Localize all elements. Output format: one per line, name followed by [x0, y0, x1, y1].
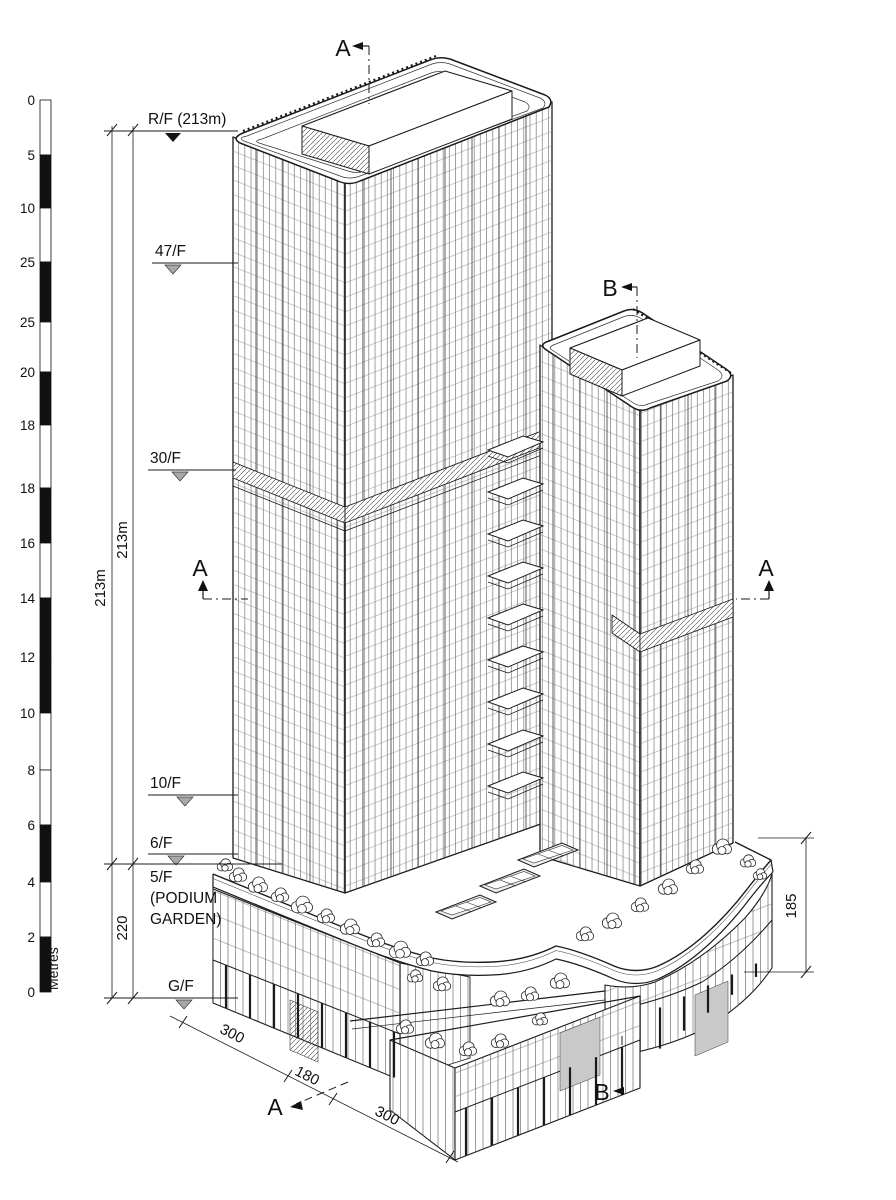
tree-foliage	[537, 1019, 543, 1025]
dim-height-213m-b: 213m	[114, 521, 131, 559]
scale-tick-label: 0	[27, 93, 35, 108]
tree-foliage	[222, 865, 228, 871]
section-b-bottom-label: B	[594, 1079, 609, 1105]
dim-height-213m-a: 213m	[92, 569, 109, 607]
garden-tree	[521, 987, 538, 1001]
section-a-top-label: A	[335, 35, 351, 61]
tree-foliage	[401, 1027, 408, 1034]
tree-foliage	[254, 885, 262, 893]
drawing-canvas: 051025252018181614121086420 Metres 213m …	[0, 0, 896, 1200]
scale-tick-label: 10	[20, 201, 35, 216]
tree-foliage	[526, 994, 533, 1001]
scale-segment	[40, 208, 51, 262]
section-marker-a-right: A	[736, 555, 774, 599]
level-rf-label: R/F (213m)	[148, 111, 226, 128]
tree-foliage	[276, 895, 283, 902]
tree-foliage	[581, 934, 588, 941]
scale-segment	[40, 882, 51, 937]
scale-segment	[40, 825, 51, 882]
level-47f: 47/F	[152, 243, 238, 274]
scale-tick-label: 16	[20, 536, 35, 551]
level-gf-marker	[176, 1000, 192, 1009]
tree-foliage	[496, 1041, 503, 1048]
section-a-left-label: A	[192, 555, 208, 581]
scale-segment	[40, 372, 51, 425]
tree-foliage	[431, 1041, 439, 1049]
right-tower	[540, 309, 733, 886]
scale-tick-label: 5	[27, 148, 35, 163]
level-6f-label: 6/F	[150, 835, 172, 852]
tree-foliage	[298, 904, 307, 913]
level-10f: 10/F	[148, 775, 238, 806]
tree-foliage	[464, 1049, 471, 1056]
scale-tick-label: 2	[27, 930, 35, 945]
left-tower	[233, 56, 552, 893]
tree-foliage	[608, 921, 616, 929]
tree-foliage	[691, 867, 698, 874]
scale-tick-label: 14	[20, 591, 36, 606]
level-47f-label: 47/F	[155, 243, 186, 260]
level-30f-label: 30/F	[150, 450, 181, 467]
tree-foliage	[234, 875, 241, 882]
garden-tree	[491, 1034, 508, 1048]
scale-tick-label: 18	[20, 418, 35, 433]
scale-segment	[40, 543, 51, 598]
scale-segment	[40, 155, 51, 208]
scale-segment	[40, 425, 51, 488]
scale-unit-label: Metres	[45, 947, 61, 990]
section-marker-a-bottom: A	[267, 1082, 348, 1120]
garden-tree	[217, 859, 232, 871]
right-tower-face-left	[540, 345, 640, 886]
section-a-right-label: A	[758, 555, 774, 581]
dim-plan-180: 180	[292, 1063, 322, 1090]
scale-tick-label: 10	[20, 706, 35, 721]
tree-foliage	[322, 916, 329, 923]
tree-foliage	[438, 984, 445, 991]
tree-foliage	[664, 887, 672, 895]
tree-foliage	[718, 847, 726, 855]
tree-foliage	[396, 949, 405, 958]
level-30f-marker	[172, 472, 188, 481]
scale-segment	[40, 100, 51, 155]
level-30f: 30/F	[148, 450, 236, 481]
section-a-bottom-label: A	[267, 1094, 283, 1120]
scale-bar: 051025252018181614121086420	[20, 93, 51, 1000]
level-5f-note2: GARDEN)	[150, 911, 221, 928]
level-rf: R/F (213m)	[104, 111, 238, 142]
architectural-axonometric-drawing: 051025252018181614121086420 Metres 213m …	[0, 0, 896, 1200]
dim-plan-300a: 300	[217, 1021, 247, 1048]
dim-podium-185: 185	[783, 893, 800, 918]
scale-segment	[40, 770, 51, 825]
tree-foliage	[412, 976, 418, 982]
tree-foliage	[421, 959, 428, 966]
scale-segment	[40, 598, 51, 657]
scale-tick-label: 6	[27, 818, 35, 833]
height-dimension-lines	[107, 124, 138, 1004]
tree-foliage	[757, 874, 763, 880]
level-10f-label: 10/F	[150, 775, 181, 792]
level-10f-marker	[177, 797, 193, 806]
scale-tick-label: 8	[27, 763, 35, 778]
scale-tick-label: 20	[20, 365, 35, 380]
garden-tree	[550, 973, 569, 989]
scale-segment	[40, 657, 51, 713]
scale-tick-label: 18	[20, 481, 35, 496]
tree-foliage	[636, 905, 643, 912]
scale-segment	[40, 262, 51, 322]
tree-foliage	[745, 861, 751, 867]
scale-tick-label: 4	[27, 875, 35, 890]
level-5f-note1: (PODIUM	[150, 890, 217, 907]
tree-foliage	[346, 927, 354, 935]
scale-segment	[40, 322, 51, 372]
scale-tick-label: 25	[20, 255, 35, 270]
level-rf-marker	[165, 133, 181, 142]
section-b-top-label: B	[602, 275, 617, 301]
scale-segment	[40, 488, 51, 543]
tree-foliage	[496, 999, 504, 1007]
tree-foliage	[556, 981, 564, 989]
tree-foliage	[372, 940, 379, 947]
scale-tick-label: 25	[20, 315, 35, 330]
dim-podium-220: 220	[114, 915, 131, 940]
level-47f-marker	[165, 265, 181, 274]
scale-tick-label: 12	[20, 650, 35, 665]
garden-tree	[490, 991, 509, 1007]
scale-tick-label: 0	[27, 985, 35, 1000]
scale-segment	[40, 713, 51, 770]
level-gf-label: G/F	[168, 978, 194, 995]
level-5f-label: 5/F	[150, 869, 172, 886]
